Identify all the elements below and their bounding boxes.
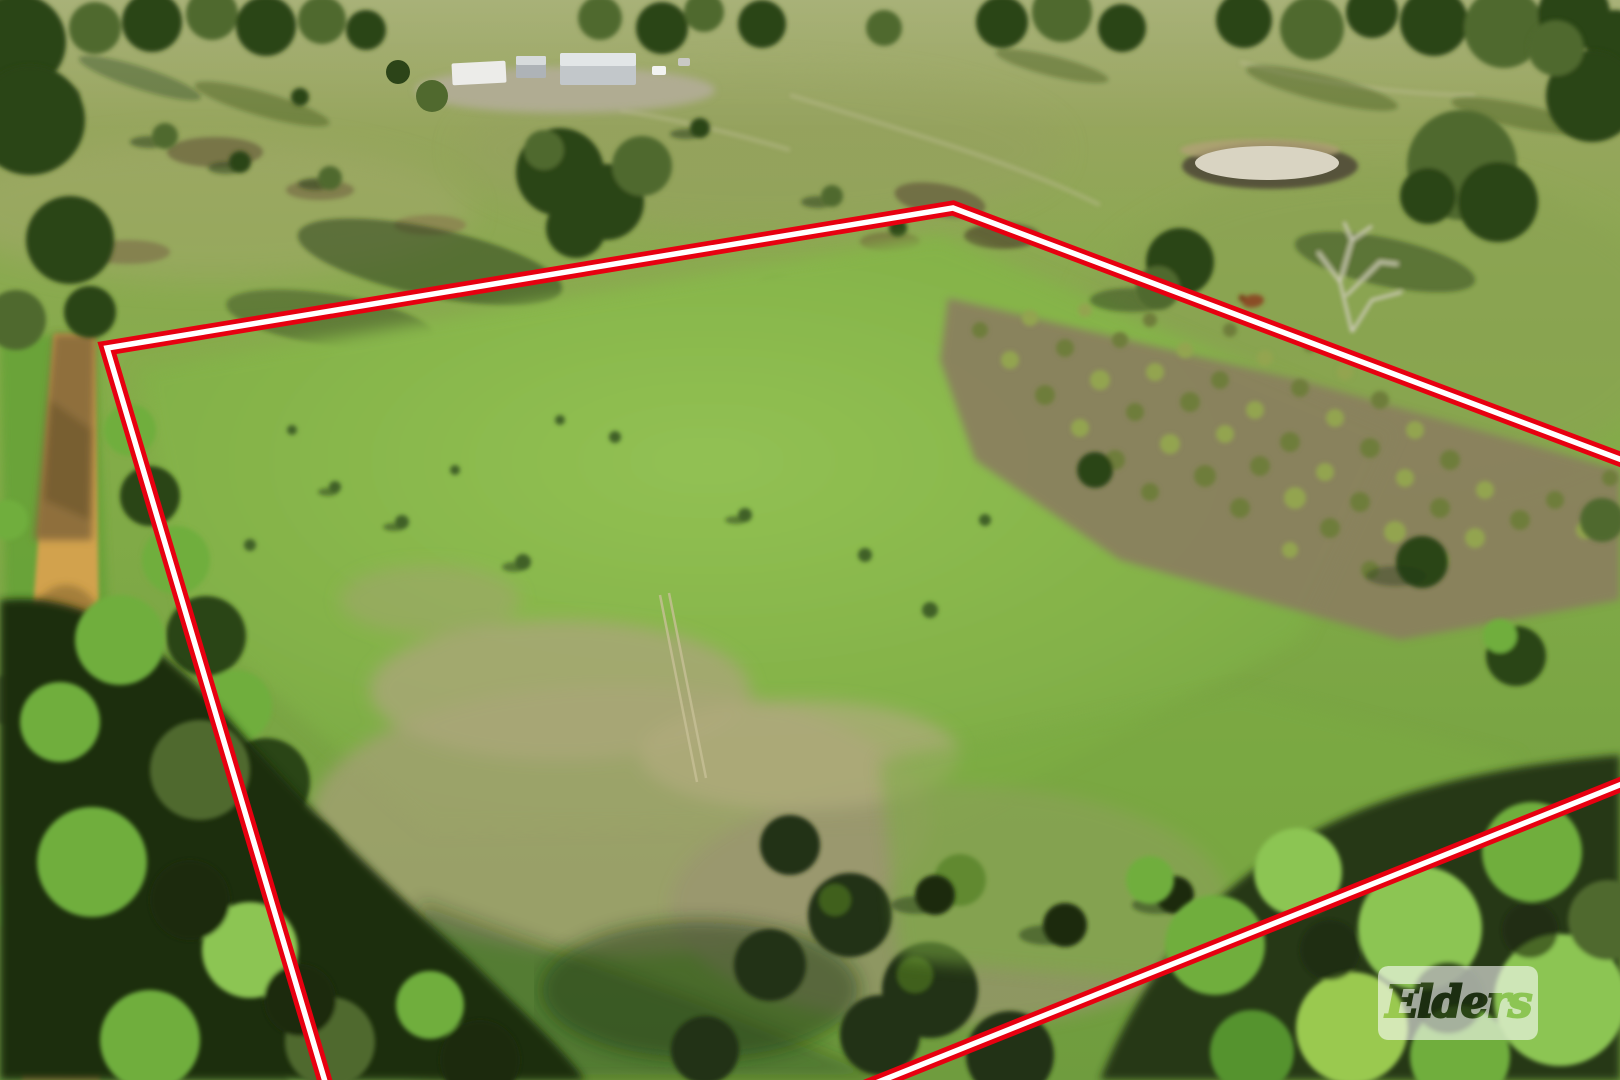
photo-canvas: Elders	[0, 0, 1620, 1080]
elders-watermark	[1378, 966, 1538, 1040]
watermark-box	[1378, 966, 1538, 1040]
regrowth-gum	[1077, 452, 1113, 488]
yard-tree	[416, 80, 448, 112]
vehicle-white	[652, 66, 666, 75]
farm-dam	[1180, 139, 1358, 189]
vehicle-grey	[678, 58, 690, 66]
carport-roof	[451, 61, 506, 86]
machinery-shed-roof	[560, 53, 636, 66]
dam-water	[1195, 146, 1339, 180]
yard-tree	[386, 60, 410, 84]
farm-house-roof	[516, 56, 546, 65]
aerial-photo: Elders	[0, 0, 1620, 1080]
